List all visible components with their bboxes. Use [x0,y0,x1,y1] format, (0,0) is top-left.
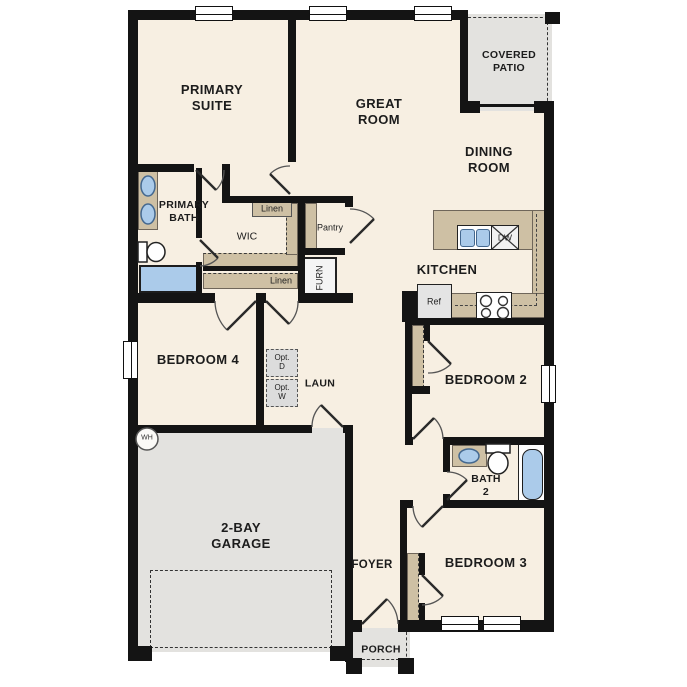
garage-door-path [150,570,332,648]
window [123,341,138,379]
room-label-wic: WIC [237,230,257,243]
wall-segment [224,196,352,203]
bedroom3-closet [407,553,419,623]
room-label-bedroom4: BEDROOM 4 [157,352,239,368]
window [309,6,347,21]
pantry-shelf [305,203,317,250]
porch-edge-bottom [362,659,399,661]
wall-segment [128,10,138,661]
wall-segment [135,164,194,172]
room-label-bedroom2: BEDROOM 2 [445,372,527,388]
counter-overhang-v [536,214,538,306]
room-label-primary-bath: PRIMARY BATH [159,199,209,225]
wall-segment [405,318,412,443]
wall-segment [460,101,480,113]
wall-segment [419,603,425,623]
patio-roof-line-top [468,17,548,19]
room-label-primary-suite: PRIMARY SUITE [181,82,243,115]
wall-segment [298,293,353,303]
label-linen-hall: Linen [270,275,292,286]
room-label-great-room: GREAT ROOM [356,96,403,129]
label-fridge: Ref [427,296,441,307]
wall-segment [405,386,430,394]
wall-segment [534,101,553,113]
wall-segment [405,318,554,325]
wall-segment [256,303,264,430]
wall-segment [443,500,554,508]
wall-segment [405,437,413,445]
room-label-garage: 2-BAY GARAGE [211,520,270,553]
room-label-bedroom3: BEDROOM 3 [445,555,527,571]
wall-segment [443,437,554,445]
wall-segment [345,620,362,632]
window [195,6,233,21]
label-furnace: FURN [314,266,325,291]
wall-segment [133,293,215,303]
label-opt-washer: Opt. W [274,384,289,402]
wall-segment [203,266,298,271]
window [483,616,521,631]
wall-segment [460,10,468,113]
wall-segment [128,425,312,433]
wall-segment [256,293,266,303]
patio-slider-door [480,104,534,107]
bathtub2 [522,449,543,500]
wall-segment [288,14,296,162]
stove [476,292,512,319]
room-label-dining-room: DINING ROOM [465,144,513,177]
room-label-covered-patio: COVERED PATIO [482,49,536,75]
window [441,616,479,631]
room-label-laundry: LAUN [305,377,335,390]
bathtub-primary [139,265,198,293]
wall-segment [345,196,353,207]
wall-segment [545,12,560,24]
label-pantry: Pantry [317,222,343,233]
window [541,365,556,403]
bath2-vanity [452,445,487,467]
wall-segment [443,445,450,472]
room-label-porch: PORCH [361,643,400,656]
label-opt-dryer: Opt. D [274,354,289,372]
wall-segment [424,325,430,341]
bedroom2-closet [412,325,424,388]
label-dishwasher: DW [498,233,512,244]
wall-segment [419,553,425,575]
window [414,6,452,21]
room-label-foyer: FOYER [351,558,392,572]
wall-segment [128,646,152,661]
label-water-heater: WH [141,435,153,444]
patio-roof-line-right [547,17,549,111]
wall-segment [346,658,362,674]
room-label-bath2: BATH 2 [471,473,501,499]
primary-bath-vanity [138,170,158,230]
wall-segment [343,425,353,433]
label-linen-top: Linen [261,203,283,214]
wall-segment [196,262,202,293]
sink-basin-right [476,229,490,247]
sink-basin-left [460,229,475,247]
floor-plan: PRIMARY SUITE GREAT ROOM COVERED PATIO D… [0,0,687,687]
room-label-kitchen: KITCHEN [417,262,478,278]
wall-segment [400,500,407,630]
wall-segment [398,658,414,674]
wall-segment [298,248,345,255]
